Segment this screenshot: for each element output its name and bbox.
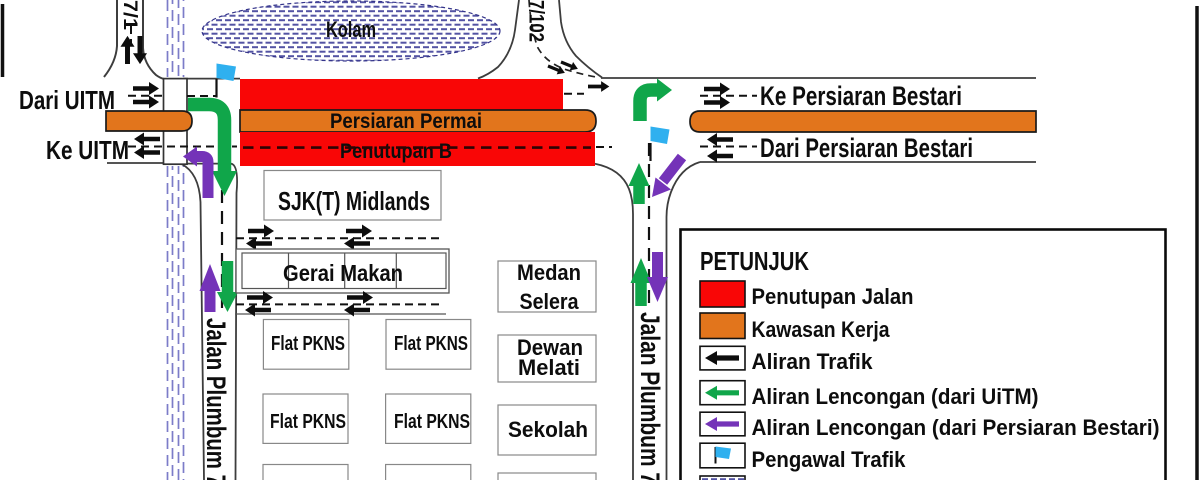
svg-text:Ke Persiaran Bestari: Ke Persiaran Bestari	[760, 81, 962, 111]
svg-text:SJK(T) Midlands: SJK(T) Midlands	[278, 186, 430, 216]
svg-text:Persiaran Permai: Persiaran Permai	[330, 109, 482, 133]
svg-text:PETUNJUK: PETUNJUK	[700, 246, 809, 276]
svg-text:Kawasan Kerja: Kawasan Kerja	[752, 317, 890, 342]
svg-text:Kolam: Kolam	[326, 17, 376, 42]
svg-text:Jalan Plumbum 7: Jalan Plumbum 7	[635, 312, 665, 480]
svg-text:Ke UITM: Ke UITM	[46, 135, 129, 165]
svg-text:Aliran Lencongan (dari UiTM): Aliran Lencongan (dari UiTM)	[752, 384, 1039, 409]
svg-text:Flat PKNS: Flat PKNS	[394, 333, 468, 355]
svg-text:Penutupan Jalan: Penutupan Jalan	[752, 284, 914, 309]
svg-text:Medan: Medan	[517, 260, 581, 285]
svg-text:Dari Persiaran Bestari: Dari Persiaran Bestari	[760, 133, 973, 163]
svg-text:Sekolah: Sekolah	[508, 417, 588, 442]
svg-text:Jalan Plumbum 7: Jalan Plumbum 7	[201, 318, 231, 480]
svg-text:Aliran Lencongan (dari Persiar: Aliran Lencongan (dari Persiaran Bestari…	[752, 415, 1160, 440]
svg-text:Melati: Melati	[518, 355, 580, 380]
svg-text:Flat PKNS: Flat PKNS	[270, 411, 346, 433]
svg-text:Gerai Makan: Gerai Makan	[283, 260, 403, 286]
svg-text:Aliran Trafik: Aliran Trafik	[752, 349, 873, 374]
svg-text:Selera: Selera	[520, 289, 580, 314]
svg-text:Penutupan B: Penutupan B	[340, 139, 452, 163]
svg-text:7/102: 7/102	[525, 0, 549, 42]
svg-text:7/1: 7/1	[119, 0, 140, 30]
svg-text:Flat PKNS: Flat PKNS	[394, 411, 470, 433]
svg-text:Dari UITM: Dari UITM	[19, 85, 115, 115]
svg-text:Flat PKNS: Flat PKNS	[271, 333, 345, 355]
svg-text:Pengawal Trafik: Pengawal Trafik	[752, 447, 906, 472]
